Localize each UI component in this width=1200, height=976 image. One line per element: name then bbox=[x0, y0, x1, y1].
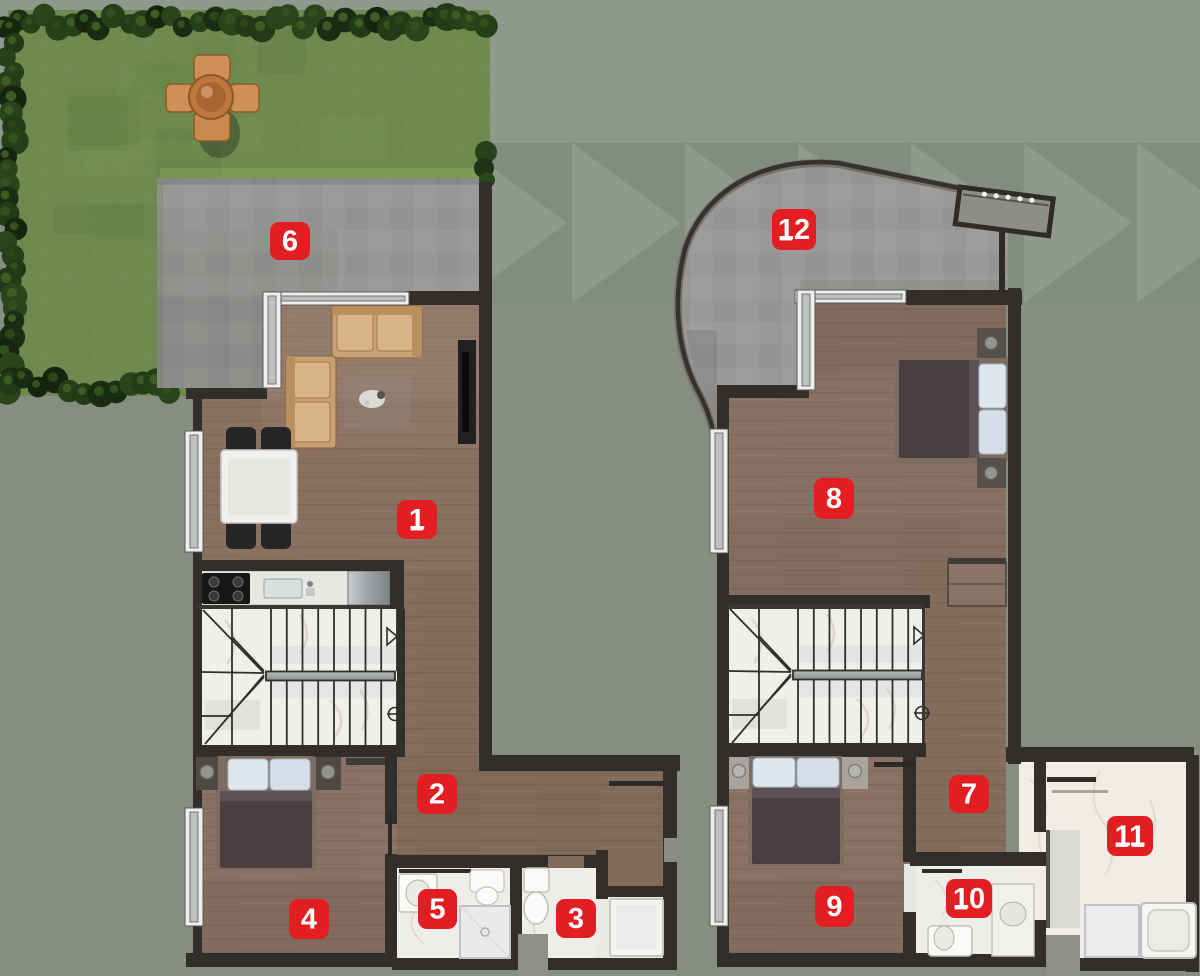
svg-text:3: 3 bbox=[568, 903, 584, 935]
svg-text:8: 8 bbox=[826, 483, 842, 515]
svg-text:4: 4 bbox=[301, 904, 317, 936]
svg-text:10: 10 bbox=[953, 883, 985, 915]
svg-text:5: 5 bbox=[429, 894, 445, 926]
svg-text:7: 7 bbox=[961, 779, 977, 811]
svg-text:9: 9 bbox=[826, 891, 842, 923]
svg-text:6: 6 bbox=[282, 226, 298, 258]
svg-text:11: 11 bbox=[1115, 821, 1146, 853]
svg-text:12: 12 bbox=[778, 214, 810, 246]
svg-text:1: 1 bbox=[409, 504, 425, 536]
svg-text:2: 2 bbox=[429, 779, 445, 811]
